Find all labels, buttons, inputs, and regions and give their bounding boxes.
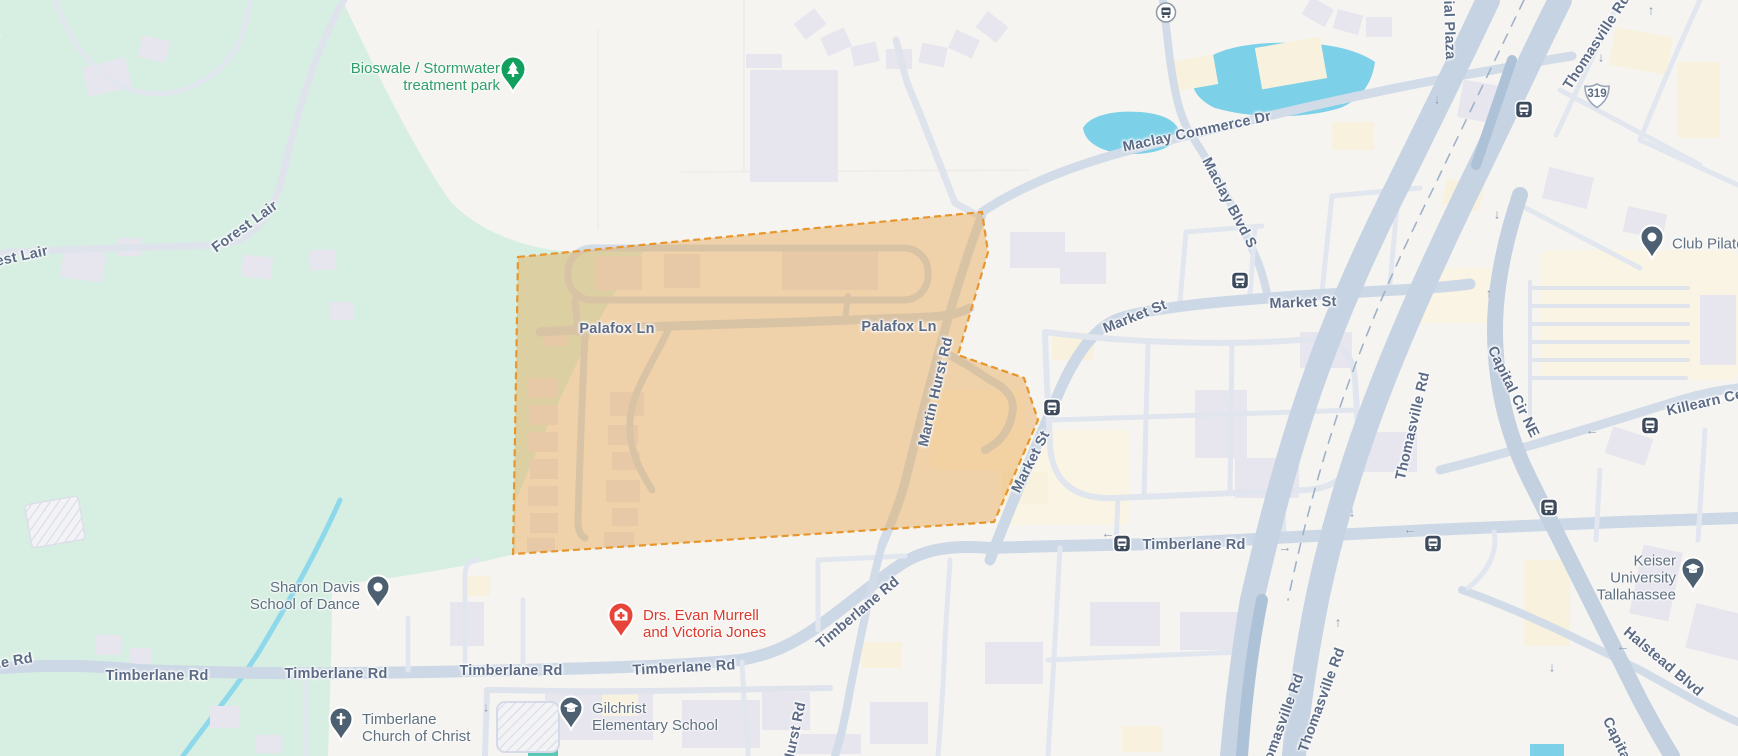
poi-label-timberlane-church-of-christ[interactable]: Timberlane Church of Christ <box>362 711 470 745</box>
road-label-timberlane-rd: Timberlane Rd <box>284 666 387 682</box>
transit-stop-icon[interactable] <box>1540 498 1559 522</box>
map-base-layer <box>0 0 1738 756</box>
oneway-down-arrow-icon: ↓ <box>1349 505 1356 520</box>
poi-label-drs-evan-murrell-and-victoria-jones[interactable]: Drs. Evan Murrell and Victoria Jones <box>643 607 766 641</box>
oneway-up-arrow-icon: ↑ <box>1335 615 1342 630</box>
poi-label-club-pilates[interactable]: Club Pilates <box>1672 236 1738 253</box>
oneway-left-arrow-icon: ← <box>1586 423 1599 438</box>
oneway-left-arrow-icon: ← <box>1404 522 1417 537</box>
transit-stop-icon[interactable] <box>1515 100 1534 124</box>
oneway-left-arrow-icon: ← <box>1617 639 1630 654</box>
route-shield-us-319: 319 <box>1584 83 1611 109</box>
road-label-palafox-ln: Palafox Ln <box>861 319 936 335</box>
oneway-down-arrow-icon: ↓ <box>1434 92 1441 107</box>
transit-stop-icon[interactable] <box>1156 2 1177 28</box>
road-label-timberlane-rd: Timberlane Rd <box>459 663 562 679</box>
road-label-timberlane-rd: Timberlane Rd <box>105 668 208 684</box>
park-pin-icon[interactable] <box>498 56 528 99</box>
poi-label-gilchrist-elementary-school[interactable]: Gilchrist Elementary School <box>592 700 718 734</box>
generic-poi-pin-icon[interactable] <box>1638 225 1666 266</box>
road-label-market-st: Market St <box>1269 294 1337 312</box>
transit-stop-icon[interactable] <box>1043 398 1062 422</box>
poi-label-bioswale-stormwater-treatment-park[interactable]: Bioswale / Stormwater treatment park <box>351 60 500 94</box>
transit-stop-icon[interactable] <box>1641 416 1660 440</box>
oneway-right-arrow-icon: → <box>1279 540 1292 555</box>
oneway-up-arrow-icon: ↑ <box>1486 286 1493 301</box>
road-label-palafox-ln: Palafox Ln <box>579 321 654 337</box>
transit-stop-icon[interactable] <box>1231 271 1250 295</box>
transit-stop-icon[interactable] <box>1113 534 1132 558</box>
oneway-down-arrow-icon: ↓ <box>1494 207 1501 222</box>
oneway-up-arrow-icon: ↑ <box>1648 3 1655 18</box>
oneway-down-arrow-icon: ↓ <box>483 700 490 715</box>
oneway-left-arrow-icon: ← <box>1102 526 1115 541</box>
oneway-down-arrow-icon: ↓ <box>1598 50 1605 65</box>
oneway-down-arrow-icon: ↓ <box>1549 660 1556 675</box>
school-pin-icon[interactable] <box>1679 557 1707 598</box>
generic-poi-pin-icon[interactable] <box>364 575 392 616</box>
map-canvas[interactable]: Forest Lair Forest Lair Forest Lair Pala… <box>0 0 1738 756</box>
church-pin-icon[interactable] <box>327 707 355 748</box>
highlighted-region[interactable] <box>513 212 1038 554</box>
poi-label-sharon-davis-school-of-dance[interactable]: Sharon Davis School of Dance <box>250 579 360 613</box>
road-label-ial-plaza: ial Plaza <box>1440 0 1458 60</box>
road-label-timberlane-rd: Timberlane Rd <box>1142 537 1245 553</box>
poi-label-keiser-university-tallahassee[interactable]: Keiser University Tallahassee <box>1597 553 1676 604</box>
medical-pin-icon[interactable] <box>606 602 636 645</box>
school-pin-icon[interactable] <box>557 696 585 737</box>
transit-stop-icon[interactable] <box>1424 534 1443 558</box>
